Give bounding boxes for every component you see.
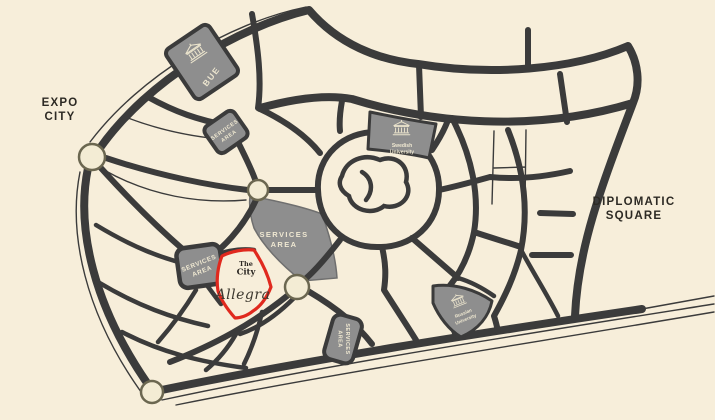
expo-city-label-line1: EXPO [42,97,79,109]
the-city-logo-line2: City [237,268,257,278]
diplomatic-square-label-line1: DIPLOMATIC [593,196,676,208]
swedish-university-label-line2: University [390,150,414,156]
roundabout-west [79,144,105,170]
allegra-name-label: Allegra [214,287,271,303]
diplomatic-square-label-line2: SQUARE [606,210,662,222]
services-area-label-line1: SERVICES [344,323,350,354]
services-area-label-line2: AREA [271,240,298,249]
masterplan-map: Swedish University Russian University BU… [0,0,715,420]
roundabout-south-center [285,275,309,299]
expo-city-label-line2: CITY [45,111,76,123]
services-area-label-line2: AREA [337,330,343,347]
swedish-university-label-line1: Swedish [392,143,412,149]
map-canvas: Swedish University Russian University BU… [0,0,715,420]
services-area-label-line1: SERVICES [260,230,309,239]
roundabout-center [248,180,268,200]
roundabout-south-west [141,381,163,403]
